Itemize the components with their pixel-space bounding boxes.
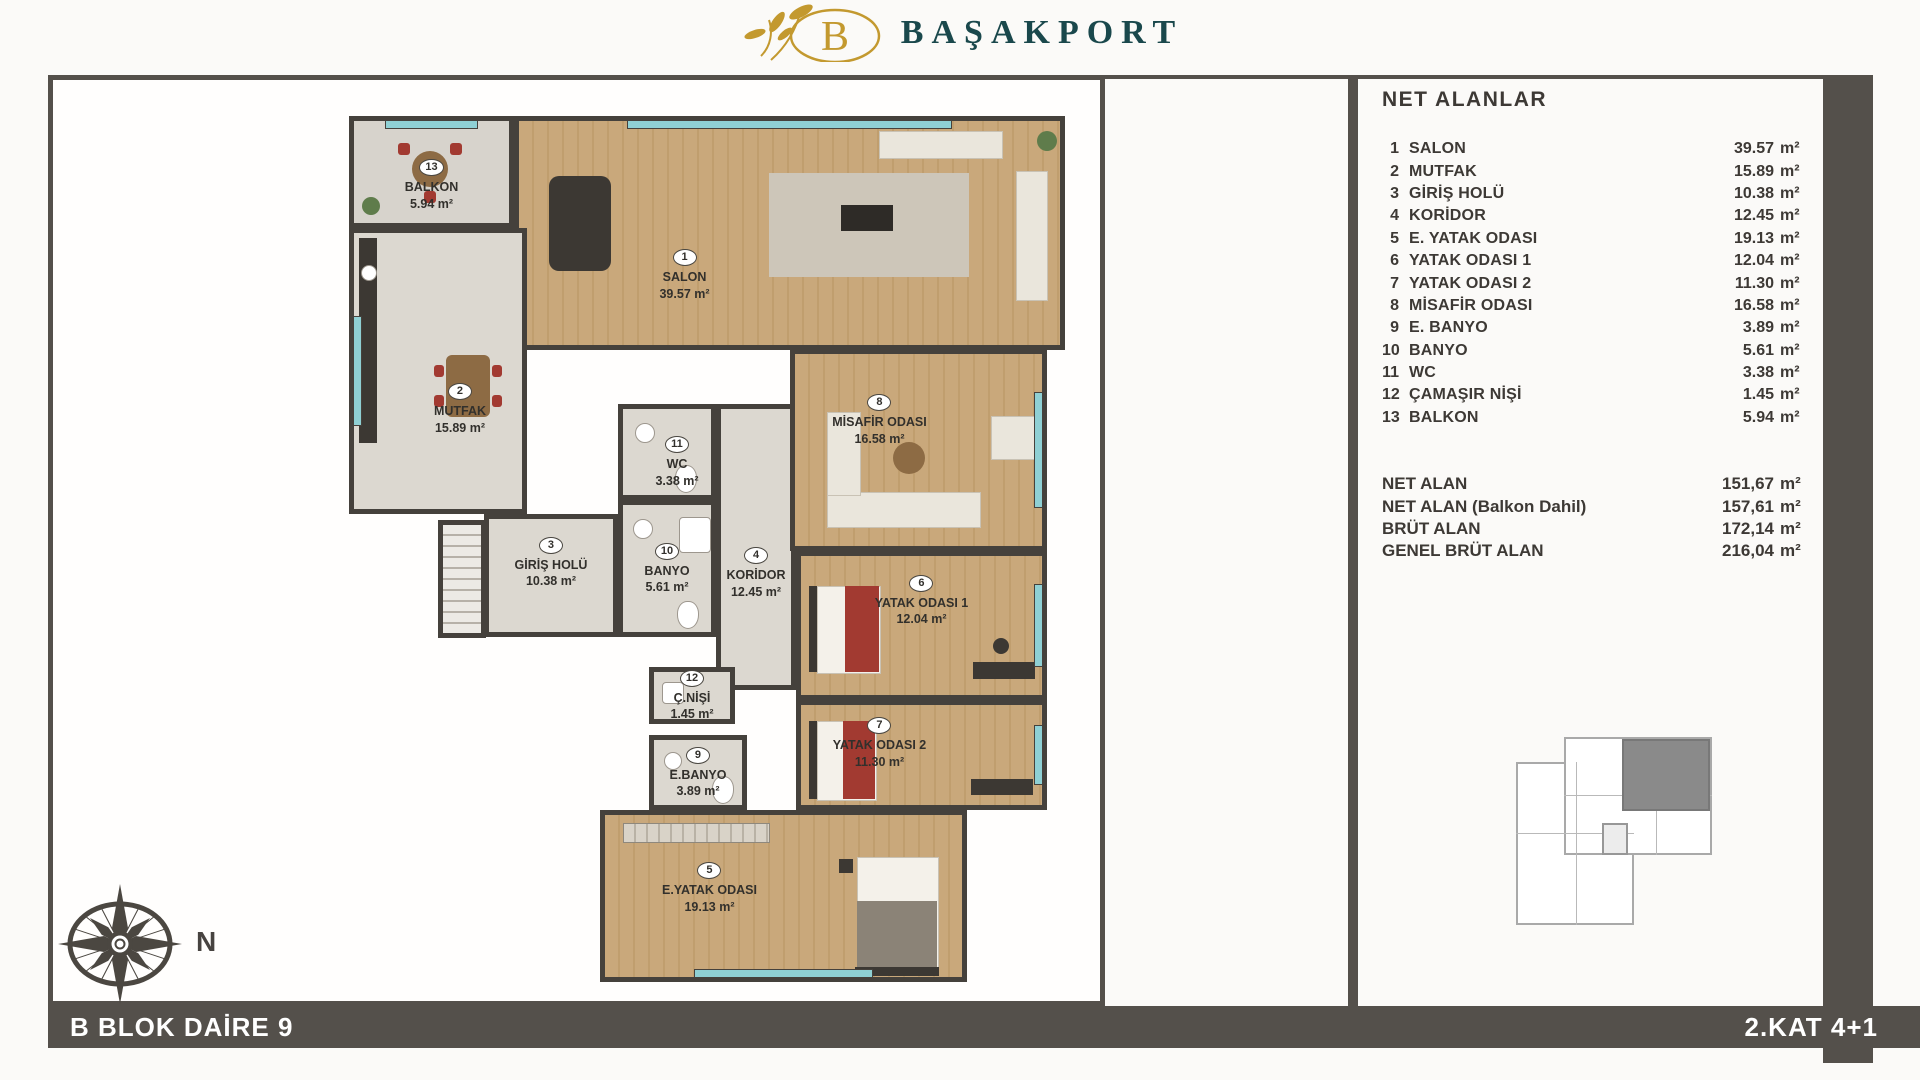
room-area-unit: m² xyxy=(1780,140,1806,158)
room-number: 8 xyxy=(1382,297,1399,315)
header: B BAŞAKPORT xyxy=(0,4,1920,62)
room-label: 10BANYO5.61 m² xyxy=(644,543,689,595)
plan-room-7: 7YATAK ODASI 211.30 m² xyxy=(796,700,1047,810)
room-area: 11.30 m² xyxy=(855,755,904,769)
room-number: 3 xyxy=(1382,185,1399,203)
room-name: E.BANYO xyxy=(670,768,727,782)
room-name: BANYO xyxy=(1409,342,1468,360)
tv-graphic xyxy=(841,205,893,231)
room-name: SALON xyxy=(1409,140,1466,158)
room-area-unit: m² xyxy=(1780,409,1806,427)
room-name: MİSAFİR ODASI xyxy=(1409,297,1533,315)
area-rows: 1 SALON 39.57 m² 2 MUTFAK 15.89 m² 3 GİR… xyxy=(1382,138,1806,429)
summary-area-unit: m² xyxy=(1780,497,1806,517)
footer-bar: B BLOK DAİRE 9 2.KAT 4+1 xyxy=(48,1006,1920,1048)
summary-area: 172,14 m² xyxy=(1722,519,1806,539)
room-number-badge: 5 xyxy=(697,862,721,879)
room-area-value: 19.13 xyxy=(1728,230,1774,248)
room-area-value: 1.45 xyxy=(1728,386,1774,404)
sink-graphic xyxy=(633,519,653,539)
room-number: 11 xyxy=(1382,364,1399,382)
summary-label: NET ALAN (Balkon Dahil) xyxy=(1382,497,1586,517)
window xyxy=(1034,392,1043,507)
room-name: GİRİŞ HOLÜ xyxy=(1409,185,1504,203)
room-label: 2MUTFAK15.89 m² xyxy=(434,383,486,435)
sofa-graphic xyxy=(1016,171,1048,301)
room-area-unit: m² xyxy=(1780,163,1806,181)
room-name: WC xyxy=(667,457,688,471)
room-area: 11.30 m² xyxy=(1728,275,1806,293)
room-area: 10.38 m² xyxy=(526,574,576,588)
compass-icon xyxy=(58,884,182,1004)
room-label: 3GİRİŞ HOLÜ10.38 m² xyxy=(515,537,588,589)
room-number: 9 xyxy=(1382,319,1399,337)
summary-area: 151,67 m² xyxy=(1722,474,1806,494)
area-row: 7 YATAK ODASI 2 11.30 m² xyxy=(1382,272,1806,294)
room-number-badge: 4 xyxy=(744,547,768,564)
head-graphic xyxy=(809,586,817,672)
room-area: 1.45 m² xyxy=(670,707,713,721)
room-area: 3.89 m² xyxy=(1728,319,1806,337)
room-number: 4 xyxy=(1382,207,1399,225)
chair-graphic xyxy=(492,395,502,407)
chair-graphic xyxy=(492,365,502,377)
room-area-unit: m² xyxy=(1780,207,1806,225)
area-row: 9 E. BANYO 3.89 m² xyxy=(1382,317,1806,339)
room-area: 16.58 m² xyxy=(1728,297,1806,315)
key-plan xyxy=(1506,737,1720,933)
plan-room-13: 13BALKON5.94 m² xyxy=(349,116,514,228)
floor-plan: 1SALON39.57 m²2MUTFAK15.89 m²3GİRİŞ HOLÜ… xyxy=(53,80,1100,1001)
room-name: BALKON xyxy=(1409,409,1479,427)
room-number: 13 xyxy=(1382,409,1399,427)
room-name: YATAK ODASI 1 xyxy=(875,596,969,610)
summary-area-value: 157,61 xyxy=(1722,497,1774,517)
room-area-unit: m² xyxy=(1780,230,1806,248)
room-area-value: 12.45 xyxy=(1728,207,1774,225)
desk-graphic xyxy=(973,662,1035,679)
area-row: 12 ÇAMAŞIR NİŞİ 1.45 m² xyxy=(1382,384,1806,406)
room-name: KORİDOR xyxy=(726,568,785,582)
room-number-badge: 12 xyxy=(680,670,704,687)
footer-right-label: 2.KAT 4+1 xyxy=(1744,1012,1878,1043)
summary-label: NET ALAN xyxy=(1382,474,1467,494)
area-row: 11 WC 3.38 m² xyxy=(1382,362,1806,384)
room-name: MİSAFİR ODASI xyxy=(832,415,926,429)
room-area: 12.04 m² xyxy=(896,612,946,626)
summary-area-value: 151,67 xyxy=(1722,474,1774,494)
room-name: YATAK ODASI 1 xyxy=(1409,252,1531,270)
room-number-badge: 11 xyxy=(665,436,689,453)
room-number-badge: 10 xyxy=(655,543,679,560)
room-area-value: 3.89 xyxy=(1728,319,1774,337)
area-row: 6 YATAK ODASI 1 12.04 m² xyxy=(1382,250,1806,272)
area-row: 13 BALKON 5.94 m² xyxy=(1382,407,1806,429)
room-name: GİRİŞ HOLÜ xyxy=(515,558,588,572)
summary-area-unit: m² xyxy=(1780,541,1806,561)
room-area: 3.38 m² xyxy=(655,474,698,488)
room-label: 1SALON39.57 m² xyxy=(659,249,709,301)
room-area-value: 3.38 xyxy=(1728,364,1774,382)
room-label: 12Ç.NİŞİ1.45 m² xyxy=(670,670,713,722)
summary-row: GENEL BRÜT ALAN 216,04 m² xyxy=(1382,540,1806,562)
room-area: 39.57 m² xyxy=(659,287,709,301)
room-area: 5.94 m² xyxy=(1728,409,1806,427)
room-area: 5.61 m² xyxy=(1728,342,1806,360)
room-name: ÇAMAŞIR NİŞİ xyxy=(1409,386,1522,404)
plant-graphic xyxy=(362,197,380,215)
room-area: 3.89 m² xyxy=(676,784,719,798)
area-row: 4 KORİDOR 12.45 m² xyxy=(1382,205,1806,227)
chair-graphic xyxy=(398,143,410,155)
room-area: 1.45 m² xyxy=(1728,386,1806,404)
room-area-value: 5.61 xyxy=(1728,342,1774,360)
room-number: 12 xyxy=(1382,386,1399,404)
sofa-graphic xyxy=(879,131,1003,159)
room-area: 3.38 m² xyxy=(1728,364,1806,382)
room-area-value: 10.38 xyxy=(1728,185,1774,203)
room-name: BANYO xyxy=(644,564,689,578)
ctable-graphic xyxy=(893,442,925,474)
room-name: E.YATAK ODASI xyxy=(662,883,757,897)
room-name: KORİDOR xyxy=(1409,207,1486,225)
page: { "brand": { "logo_letter": "B", "name":… xyxy=(0,0,1920,1080)
room-area-value: 15.89 xyxy=(1728,163,1774,181)
summary-area: 157,61 m² xyxy=(1722,497,1806,517)
room-area-unit: m² xyxy=(1780,364,1806,382)
room-name: E. BANYO xyxy=(1409,319,1488,337)
brand-name: BAŞAKPORT xyxy=(901,4,1183,62)
floor-plan-box: 1SALON39.57 m²2MUTFAK15.89 m²3GİRİŞ HOLÜ… xyxy=(48,75,1105,1006)
room-label: 11WC3.38 m² xyxy=(655,436,698,488)
summary-area: 216,04 m² xyxy=(1722,541,1806,561)
room-area: 12.04 m² xyxy=(1728,252,1806,270)
chair-graphic xyxy=(450,143,462,155)
window xyxy=(353,316,362,426)
chair2-graphic xyxy=(993,638,1009,654)
room-area-unit: m² xyxy=(1780,342,1806,360)
summary-area-value: 216,04 xyxy=(1722,541,1774,561)
room-number: 7 xyxy=(1382,275,1399,293)
plan-room-3: 3GİRİŞ HOLÜ10.38 m² xyxy=(484,514,618,637)
room-area-unit: m² xyxy=(1780,297,1806,315)
nstand-graphic xyxy=(839,859,853,873)
head-graphic xyxy=(809,721,817,799)
panel-title: NET ALANLAR xyxy=(1382,88,1806,112)
room-number-badge: 7 xyxy=(867,717,891,734)
panel-divider xyxy=(1348,75,1358,1006)
room-label: 7YATAK ODASI 211.30 m² xyxy=(833,717,927,769)
area-row: 1 SALON 39.57 m² xyxy=(1382,138,1806,160)
plan-room-2: 2MUTFAK15.89 m² xyxy=(349,228,527,514)
room-area: 5.61 m² xyxy=(645,580,688,594)
summary-area-value: 172,14 xyxy=(1722,519,1774,539)
room-name: SALON xyxy=(663,270,707,284)
summary-area-unit: m² xyxy=(1780,519,1806,539)
plan-room-8: 8MİSAFİR ODASI16.58 m² xyxy=(790,349,1047,551)
room-area: 39.57 m² xyxy=(1728,140,1806,158)
room-area-unit: m² xyxy=(1780,319,1806,337)
room-number: 5 xyxy=(1382,230,1399,248)
room-number: 2 xyxy=(1382,163,1399,181)
logo-letter: B xyxy=(821,14,849,60)
room-label: 6YATAK ODASI 112.04 m² xyxy=(875,575,969,627)
footer-left-label: B BLOK DAİRE 9 xyxy=(70,1012,293,1043)
plan-room-10: 10BANYO5.61 m² xyxy=(618,500,716,637)
room-number-badge: 9 xyxy=(686,747,710,764)
summary-area-unit: m² xyxy=(1780,474,1806,494)
room-area-unit: m² xyxy=(1780,252,1806,270)
room-number-badge: 3 xyxy=(539,537,563,554)
desk-graphic xyxy=(971,779,1033,795)
summary-label: GENEL BRÜT ALAN xyxy=(1382,541,1544,561)
room-area: 12.45 m² xyxy=(1728,207,1806,225)
room-number: 10 xyxy=(1382,342,1399,360)
sink-graphic xyxy=(361,265,377,281)
room-label: 8MİSAFİR ODASI16.58 m² xyxy=(832,394,926,446)
room-name: MUTFAK xyxy=(434,404,486,418)
window xyxy=(385,120,478,129)
wc-graphic xyxy=(677,601,699,629)
room-area-value: 39.57 xyxy=(1728,140,1774,158)
room-number: 1 xyxy=(1382,140,1399,158)
room-name: E. YATAK ODASI xyxy=(1409,230,1537,248)
plan-room-12: 12Ç.NİŞİ1.45 m² xyxy=(649,667,735,724)
room-area: 15.89 m² xyxy=(435,421,485,435)
room-area: 15.89 m² xyxy=(1728,163,1806,181)
right-border-bar xyxy=(1823,75,1873,1063)
room-name: WC xyxy=(1409,364,1436,382)
area-row: 10 BANYO 5.61 m² xyxy=(1382,340,1806,362)
plan-room-11: 11WC3.38 m² xyxy=(618,404,716,500)
room-number-badge: 2 xyxy=(448,383,472,400)
sink-graphic xyxy=(635,423,655,443)
plan-room-5: 5E.YATAK ODASI19.13 m² xyxy=(600,810,967,982)
key-plan-highlighted-unit xyxy=(1622,739,1710,811)
room-name: BALKON xyxy=(405,180,458,194)
dtable-graphic xyxy=(549,176,611,271)
room-name: YATAK ODASI 2 xyxy=(1409,275,1531,293)
room-area-value: 5.94 xyxy=(1728,409,1774,427)
net-areas-panel: NET ALANLAR 1 SALON 39.57 m² 2 MUTFAK 15… xyxy=(1382,88,1806,563)
summary-row: BRÜT ALAN 172,14 m² xyxy=(1382,518,1806,540)
area-row: 2 MUTFAK 15.89 m² xyxy=(1382,160,1806,182)
area-summary: NET ALAN 151,67 m² NET ALAN (Balkon Dahi… xyxy=(1382,473,1806,563)
room-number-badge: 1 xyxy=(673,249,697,266)
plan-room-1: 1SALON39.57 m² xyxy=(514,116,1065,350)
area-row: 8 MİSAFİR ODASI 16.58 m² xyxy=(1382,295,1806,317)
room-name: YATAK ODASI 2 xyxy=(833,738,927,752)
room-name: Ç.NİŞİ xyxy=(674,691,711,705)
room-label: 13BALKON5.94 m² xyxy=(405,159,458,211)
room-label: 5E.YATAK ODASI19.13 m² xyxy=(662,862,757,914)
summary-row: NET ALAN (Balkon Dahil) 157,61 m² xyxy=(1382,495,1806,517)
brand-logo-icon: B xyxy=(737,4,887,62)
key-plan-line xyxy=(1576,762,1577,925)
room-area-value: 12.04 xyxy=(1728,252,1774,270)
room-number-badge: 8 xyxy=(867,394,891,411)
key-plan-core xyxy=(1602,823,1628,855)
room-label: 9E.BANYO3.89 m² xyxy=(670,747,727,799)
room-area: 19.13 m² xyxy=(684,900,734,914)
staircase xyxy=(438,520,486,638)
area-row: 5 E. YATAK ODASI 19.13 m² xyxy=(1382,228,1806,250)
sofa-graphic xyxy=(991,416,1035,460)
window xyxy=(627,120,952,129)
plant-graphic xyxy=(1037,131,1057,151)
room-area: 16.58 m² xyxy=(854,432,904,446)
summary-label: BRÜT ALAN xyxy=(1382,519,1481,539)
room-area: 12.45 m² xyxy=(731,585,781,599)
chair-graphic xyxy=(434,365,444,377)
window xyxy=(1034,725,1043,785)
grayblanket-graphic xyxy=(857,901,937,967)
room-area: 5.94 m² xyxy=(410,197,453,211)
window xyxy=(1034,584,1043,667)
room-area: 19.13 m² xyxy=(1728,230,1806,248)
room-number: 6 xyxy=(1382,252,1399,270)
room-area-unit: m² xyxy=(1780,386,1806,404)
hatch-graphic xyxy=(623,823,770,843)
north-label: N xyxy=(196,926,216,958)
room-area-unit: m² xyxy=(1780,185,1806,203)
room-area-value: 16.58 xyxy=(1728,297,1774,315)
sofa-graphic xyxy=(827,492,981,528)
room-name: MUTFAK xyxy=(1409,163,1477,181)
plan-room-6: 6YATAK ODASI 112.04 m² xyxy=(796,551,1047,700)
window xyxy=(694,969,873,978)
room-area: 10.38 m² xyxy=(1728,185,1806,203)
room-label: 4KORİDOR12.45 m² xyxy=(726,547,785,599)
plan-room-9: 9E.BANYO3.89 m² xyxy=(649,735,747,810)
summary-row: NET ALAN 151,67 m² xyxy=(1382,473,1806,495)
area-row: 3 GİRİŞ HOLÜ 10.38 m² xyxy=(1382,183,1806,205)
room-area-unit: m² xyxy=(1780,275,1806,293)
plan-room-4: 4KORİDOR12.45 m² xyxy=(716,404,796,690)
room-area-value: 11.30 xyxy=(1728,275,1774,293)
room-number-badge: 6 xyxy=(909,575,933,592)
room-number-badge: 13 xyxy=(419,159,443,176)
